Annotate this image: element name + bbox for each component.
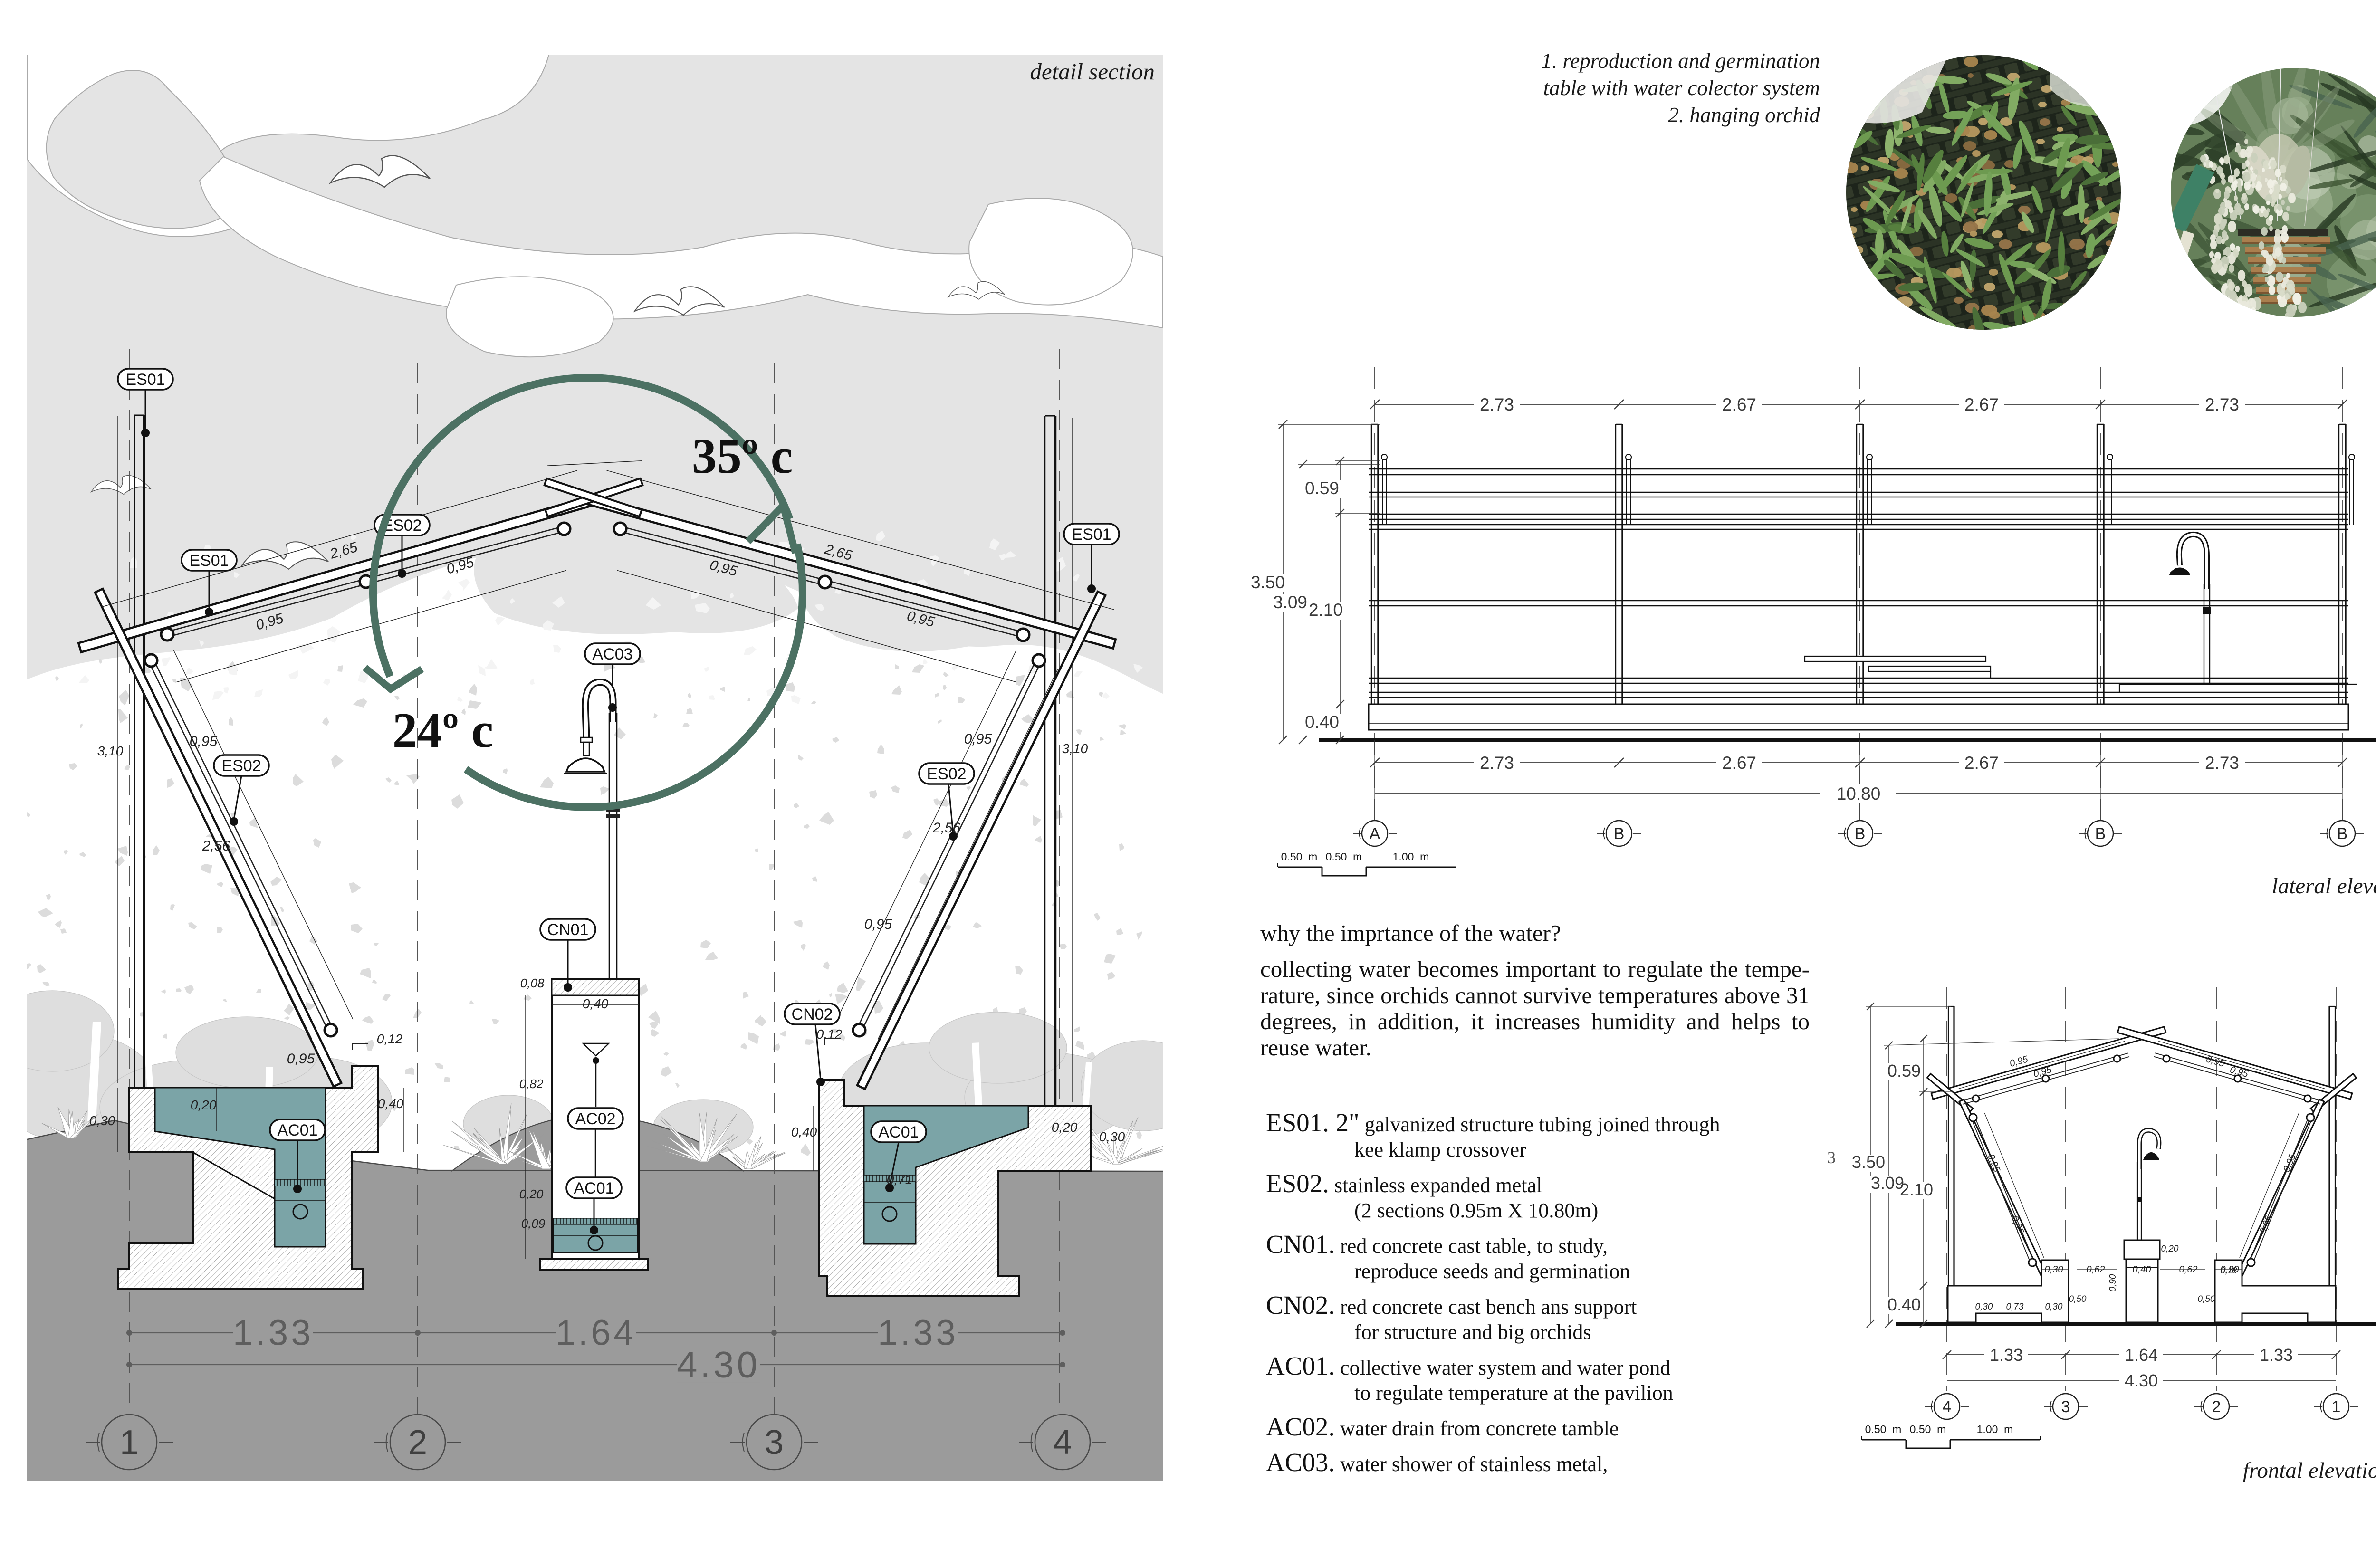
svg-text:1.33: 1.33 (233, 1313, 314, 1353)
svg-text:2: 2 (2212, 1398, 2221, 1416)
svg-text:1.64: 1.64 (556, 1313, 636, 1353)
svg-text:3: 3 (2061, 1398, 2070, 1416)
svg-text:0.50 m: 0.50 m (1281, 851, 1318, 863)
svg-text:4: 4 (1053, 1424, 1072, 1462)
svg-text:1.00 m: 1.00 m (1977, 1423, 2013, 1435)
svg-text:0,90: 0,90 (2108, 1274, 2118, 1291)
svg-text:3.50: 3.50 (1852, 1152, 1885, 1172)
svg-text:2: 2 (408, 1424, 427, 1462)
svg-text:1.33: 1.33 (2260, 1345, 2293, 1365)
svg-text:0,20: 0,20 (519, 1187, 544, 1201)
svg-text:4: 4 (1943, 1398, 1952, 1416)
svg-text:0,40: 0,40 (378, 1096, 404, 1111)
svg-text:0,95: 0,95 (190, 734, 218, 749)
svg-text:2.73: 2.73 (2205, 395, 2239, 414)
svg-text:0,30: 0,30 (2045, 1302, 2063, 1312)
svg-text:0,18: 0,18 (2220, 1266, 2237, 1275)
svg-text:ES02: ES02 (927, 765, 966, 783)
svg-text:2,56: 2,56 (202, 838, 230, 854)
svg-text:ES01: ES01 (1072, 526, 1111, 544)
svg-text:0,40: 0,40 (583, 996, 609, 1011)
svg-text:24º c: 24º c (393, 702, 494, 758)
svg-text:0.50 m: 0.50 m (1910, 1423, 1946, 1435)
svg-text:2.73: 2.73 (2205, 753, 2239, 773)
svg-text:0.40: 0.40 (1887, 1295, 1921, 1314)
svg-text:2.67: 2.67 (1964, 753, 1999, 773)
svg-text:AC03: AC03 (592, 645, 632, 663)
svg-text:CN01: CN01 (547, 921, 589, 939)
svg-text:3.50: 3.50 (1251, 573, 1285, 592)
svg-text:1.00 m: 1.00 m (1393, 851, 1429, 863)
svg-text:4.30: 4.30 (2125, 1371, 2158, 1390)
svg-text:3.09: 3.09 (1273, 593, 1307, 612)
svg-text:0.59: 0.59 (1887, 1061, 1921, 1080)
svg-text:A: A (1370, 825, 1380, 843)
svg-text:10.80: 10.80 (1837, 784, 1881, 803)
svg-text:3: 3 (765, 1424, 784, 1462)
svg-text:B: B (1614, 825, 1625, 843)
svg-text:ES01: ES01 (125, 371, 165, 389)
svg-text:0,71: 0,71 (887, 1172, 913, 1187)
svg-text:0,95: 0,95 (964, 731, 992, 747)
svg-text:0.59: 0.59 (1305, 478, 1339, 498)
svg-text:4.30: 4.30 (677, 1344, 760, 1386)
svg-text:AC01: AC01 (878, 1123, 919, 1141)
svg-text:0,20: 0,20 (1052, 1120, 1078, 1135)
svg-text:0,08: 0,08 (520, 976, 545, 990)
svg-text:3.09: 3.09 (1871, 1173, 1904, 1193)
svg-text:2.67: 2.67 (1722, 395, 1756, 414)
svg-text:B: B (2095, 825, 2106, 843)
svg-text:0,20: 0,20 (2161, 1244, 2179, 1254)
svg-text:0,30: 0,30 (89, 1113, 115, 1128)
svg-text:0,95: 0,95 (287, 1051, 315, 1067)
svg-text:ES02: ES02 (221, 757, 261, 775)
svg-text:0.50 m: 0.50 m (1326, 851, 1362, 863)
svg-text:B: B (1855, 825, 1866, 843)
svg-text:1.33: 1.33 (878, 1313, 958, 1353)
svg-text:0,20: 0,20 (191, 1098, 217, 1112)
svg-text:3,10: 3,10 (97, 744, 124, 758)
svg-text:0,73: 0,73 (2006, 1302, 2024, 1312)
svg-text:2.67: 2.67 (1964, 395, 1999, 414)
svg-text:1: 1 (120, 1424, 139, 1462)
svg-text:3,10: 3,10 (1062, 741, 1088, 756)
svg-text:0,95: 0,95 (864, 917, 892, 932)
svg-text:0,12: 0,12 (816, 1027, 843, 1042)
svg-text:0,82: 0,82 (519, 1077, 544, 1091)
svg-text:1.33: 1.33 (1990, 1345, 2023, 1365)
svg-text:2.10: 2.10 (1309, 600, 1343, 620)
svg-text:1.64: 1.64 (2125, 1345, 2158, 1365)
svg-text:2.10: 2.10 (1900, 1180, 1933, 1199)
svg-text:35º c: 35º c (692, 428, 793, 484)
svg-text:0,12: 0,12 (377, 1032, 403, 1046)
svg-text:2.73: 2.73 (1480, 395, 1514, 414)
svg-text:0,30: 0,30 (1099, 1129, 1125, 1144)
svg-text:AC01: AC01 (277, 1121, 317, 1139)
svg-text:B: B (2337, 825, 2348, 843)
svg-text:ES01: ES01 (189, 552, 229, 570)
svg-text:0,50: 0,50 (2198, 1294, 2215, 1304)
svg-text:AC01: AC01 (574, 1179, 614, 1197)
svg-text:0,50: 0,50 (2069, 1294, 2087, 1304)
svg-text:2.73: 2.73 (1480, 753, 1514, 773)
svg-text:0,30: 0,30 (1975, 1302, 1993, 1312)
svg-text:0,40: 0,40 (2133, 1264, 2151, 1275)
svg-text:0,09: 0,09 (521, 1216, 546, 1231)
svg-text:1: 1 (2332, 1398, 2341, 1416)
svg-text:AC02: AC02 (575, 1110, 615, 1128)
svg-text:0.50 m: 0.50 m (1865, 1423, 1902, 1435)
svg-text:2.67: 2.67 (1722, 753, 1756, 773)
svg-text:0.40: 0.40 (1305, 712, 1339, 732)
svg-text:CN02: CN02 (792, 1005, 833, 1023)
